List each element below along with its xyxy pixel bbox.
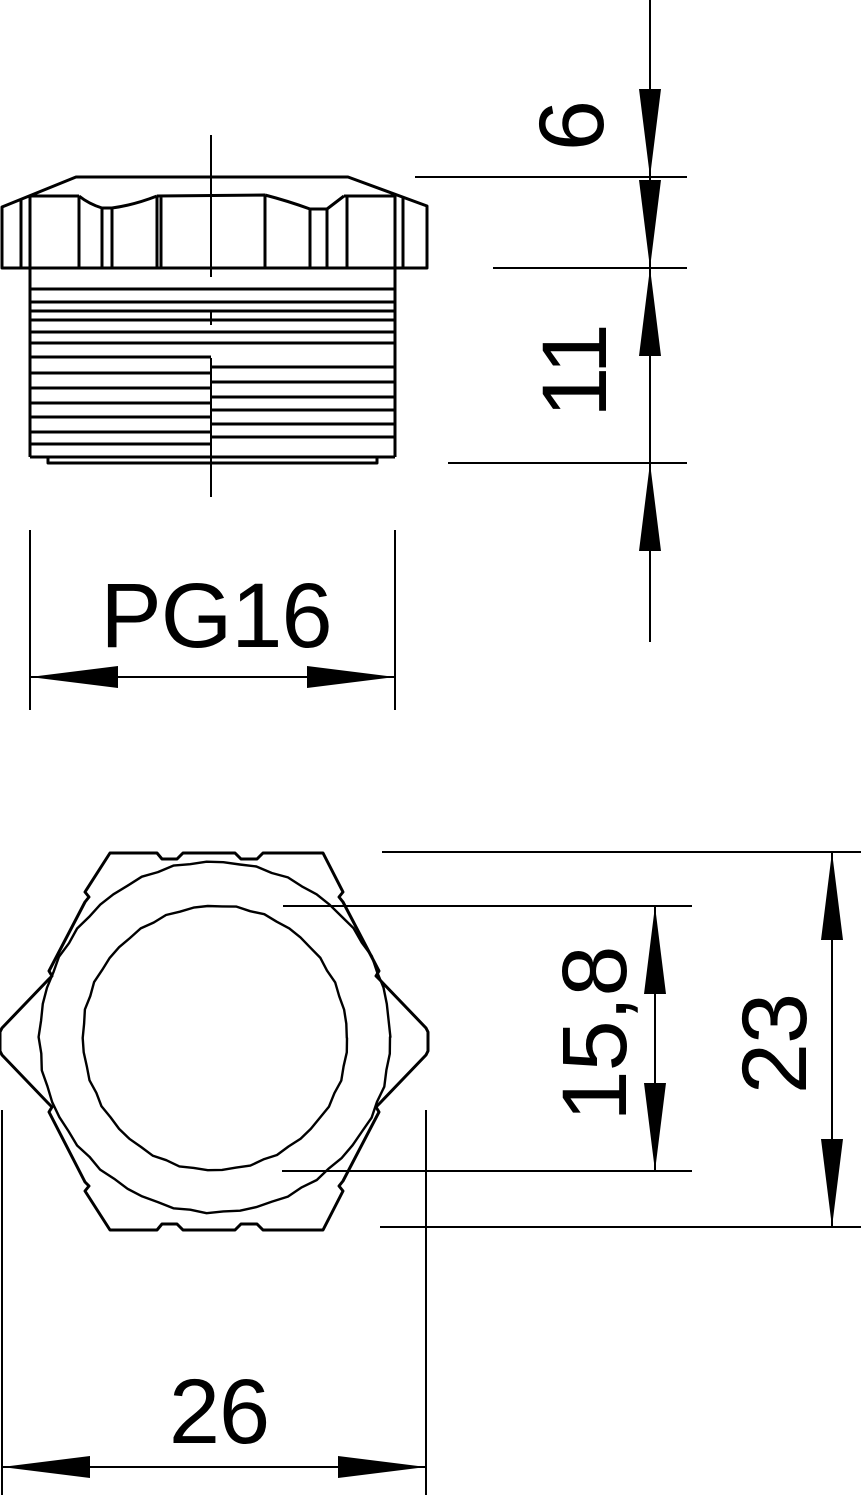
dimension-arrowhead [30,666,118,688]
dimension-arrowhead [338,1456,426,1478]
thread-lines [30,289,395,444]
label-head-height: 6 [521,101,623,151]
dimension-arrowhead [644,1083,666,1171]
dimension-labels: PG16 6 11 15,8 23 26 [100,101,826,1463]
hex-body-outline [0,853,428,1230]
dimension-arrowhead [2,1456,90,1478]
dimension-arrowhead [639,268,661,356]
label-outer-diameter: 26 [169,1361,269,1463]
label-thread-length: 11 [524,324,626,418]
dimension-arrowhead [821,1139,843,1227]
technical-drawing: PG16 6 11 15,8 23 26 [0,0,865,1500]
label-across-flats: 23 [724,994,826,1094]
label-thread-size: PG16 [100,565,331,667]
dimension-arrowhead [307,666,395,688]
inner-bore-circle [83,906,347,1170]
drawing-geometry [0,0,861,1495]
label-inner-diameter: 15,8 [544,946,646,1121]
dimension-arrowhead [821,852,843,940]
outer-knurl-circle [39,862,391,1213]
front-view [0,853,428,1230]
dimension-arrowhead [639,180,661,268]
gland-head-outline [2,177,427,268]
drawing-sheet: PG16 6 11 15,8 23 26 [0,0,865,1500]
dimension-arrowhead [639,463,661,551]
dimension-arrowhead [644,906,666,994]
dimension-arrowhead [639,89,661,177]
dimension-6-11 [415,0,687,642]
